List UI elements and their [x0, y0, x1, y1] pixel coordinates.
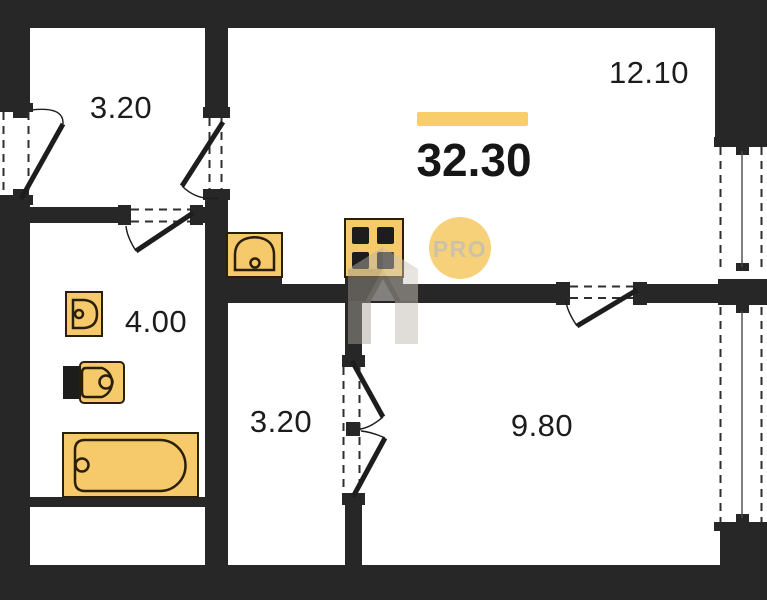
windows	[721, 147, 762, 522]
wall-corridor-bedroom-lower	[345, 505, 362, 565]
wall-top	[0, 0, 767, 28]
total-area-label: 32.30	[416, 134, 531, 186]
kitchen-sink	[227, 233, 282, 277]
wall-right-lower	[720, 531, 767, 600]
bathroom-sink	[66, 292, 102, 336]
floor-plan: PRO 3.20 12.10 4.00 3.20 9.80 32.30	[0, 0, 767, 600]
window-bedroom	[721, 307, 762, 522]
wall-bathroom-corridor	[205, 200, 228, 570]
room-label-entrance-hall: 3.20	[90, 90, 152, 125]
room-label-bedroom: 9.80	[511, 408, 573, 443]
area-highlight-bar	[417, 112, 528, 126]
floor-plan-drawing: PRO 3.20 12.10 4.00 3.20 9.80 32.30	[0, 0, 767, 600]
wall-left-upper	[0, 0, 30, 103]
window-living-room	[721, 147, 762, 271]
door-entrance-living	[182, 118, 223, 199]
door-corridor-double	[344, 361, 386, 497]
door-bathroom	[126, 210, 193, 252]
wall-bottom	[0, 565, 767, 600]
pro-badge-label: PRO	[433, 236, 487, 262]
window-sill-top	[714, 137, 767, 147]
room-label-bathroom: 4.00	[125, 304, 187, 339]
wall-kitchen-south-right	[643, 284, 718, 303]
toilet	[63, 362, 124, 403]
wall-bath-niche	[30, 497, 212, 507]
room-label-living-kitchen: 12.10	[609, 55, 689, 90]
wall-entrance-living-upper	[205, 28, 228, 109]
door-living-bedroom	[566, 287, 637, 327]
door-handle-block	[346, 422, 360, 436]
room-label-corridor: 3.20	[250, 404, 312, 439]
window-mid-junction	[718, 279, 767, 305]
wall-right-upper	[715, 25, 767, 137]
wall-left-lower	[0, 205, 30, 600]
bathtub	[63, 433, 198, 497]
window-sill-bottom	[714, 522, 767, 531]
wall-bathroom-north-left	[0, 207, 122, 223]
door-entrance	[4, 109, 64, 199]
